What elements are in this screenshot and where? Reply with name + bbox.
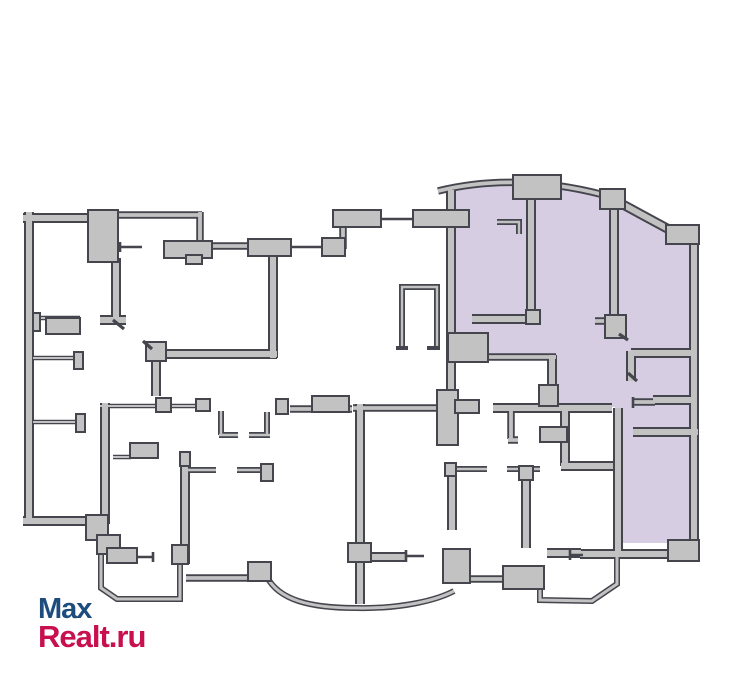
- watermark-brand-line2: Realt.ru: [38, 621, 145, 652]
- floor-plan-svg: [0, 0, 750, 674]
- floor-plan-image: Max Realt.ru: [0, 0, 750, 674]
- site-watermark: Max Realt.ru: [38, 595, 145, 652]
- highlighted-apartment-area: [448, 183, 698, 557]
